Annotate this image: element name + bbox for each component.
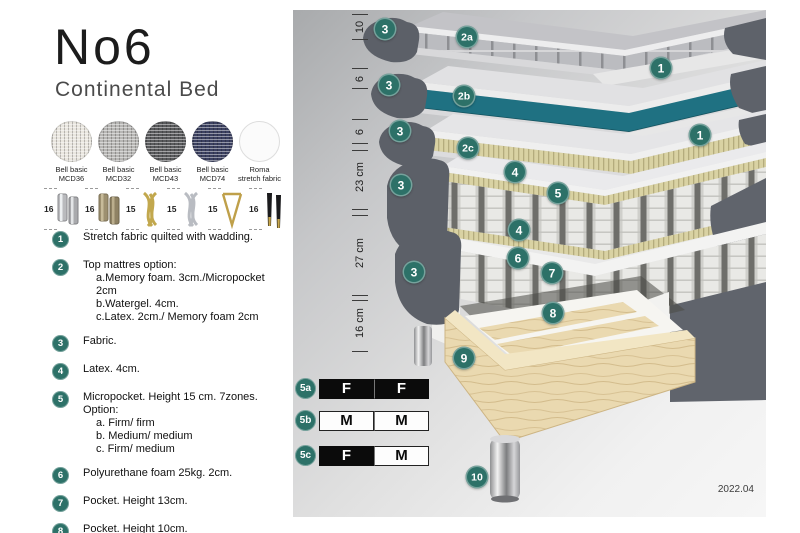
feature-sub-option: a.Memory foam. 3cm./Micropocket 2cm (83, 272, 288, 298)
fabric-swatch-label: Bell basicMCD74 (196, 166, 228, 183)
callout-badge-9: 9 (453, 347, 476, 370)
callout-badge-4: 4 (504, 161, 527, 184)
feature-item: 1Stretch fabric quilted with wadding. (52, 231, 288, 248)
feature-item: 8Pocket. Height 10cm. (52, 523, 288, 533)
firmness-bar: FM (319, 446, 429, 466)
feature-text: Micropocket. Height 15 cm. 7zones. Optio… (83, 391, 288, 456)
feature-item: 7Pocket. Height 13cm. (52, 495, 288, 512)
firmness-cell: M (319, 411, 374, 431)
firmness-row-5c: 5cFM (295, 445, 429, 466)
leg-option: 15 (208, 186, 247, 232)
fabric-swatch-row: Bell basicMCD36Bell basicMCD32Bell basic… (50, 121, 281, 183)
feature-number-badge: 2 (52, 259, 69, 276)
feature-number-badge: 8 (52, 523, 69, 533)
measure-dash (44, 229, 57, 230)
feature-sub-option: c.Latex. 2cm./ Memory foam 2cm (83, 311, 288, 324)
fabric-swatch-circle (51, 121, 92, 162)
callout-badge-8: 8 (542, 302, 565, 325)
callout-badge-5b: 5b (295, 410, 316, 431)
callout-badge-6: 6 (507, 247, 530, 270)
ruler-segment: 27 cm (348, 215, 372, 296)
firmness-bar: FF (319, 379, 429, 399)
fabric-swatch-label: Romastretch fabric (238, 166, 281, 183)
feature-sub-option: b.Watergel. 4cm. (83, 298, 288, 311)
callout-badge-3: 3 (390, 174, 413, 197)
version-label: 2022.04 (718, 484, 754, 495)
callout-badge-2c: 2c (457, 137, 480, 160)
hairpin-gold-leg-icon (217, 189, 247, 230)
firmness-row-5b: 5bMM (295, 410, 429, 431)
ruler-segment: 23 cm (348, 150, 372, 210)
fabric-swatch: Bell basicMCD43 (144, 121, 187, 183)
feature-item: 4Latex. 4cm. (52, 363, 288, 380)
callout-badge-4: 4 (508, 219, 531, 242)
callout-badge-3: 3 (389, 120, 412, 143)
ruler-segment: 10 (348, 14, 372, 40)
firmness-cell: F (319, 379, 374, 399)
ruler-measure-label: 6 (354, 67, 366, 91)
measure-dash (85, 229, 98, 230)
fabric-swatch-circle (98, 121, 139, 162)
diagram-panel: 106623 cm27 cm16 cm 32a132b132c345436789… (293, 10, 766, 517)
callout-badge-5a: 5a (295, 378, 316, 399)
feature-item: 2Top mattres option:a.Memory foam. 3cm./… (52, 259, 288, 324)
page-title: No6 (54, 18, 155, 76)
feature-text: Top mattres option:a.Memory foam. 3cm./M… (83, 259, 288, 324)
ruler-measure-label: 27 cm (354, 244, 366, 268)
callout-badge-2b: 2b (453, 85, 476, 108)
ruler-tick (352, 150, 368, 151)
feature-number-badge: 5 (52, 391, 69, 408)
feature-sub-option: a. Firm/ firm (83, 417, 288, 430)
leg-option: 16 (44, 186, 83, 232)
feature-text: Pocket. Height 13cm. (83, 495, 188, 512)
measure-dash (167, 229, 180, 230)
fabric-swatch-label: Bell basicMCD43 (149, 166, 181, 183)
info-column: No6 Continental Bed Bell basicMCD36Bell … (0, 0, 293, 533)
twist-silver-leg-icon (176, 189, 206, 230)
ruler-measure-label: 23 cm (354, 168, 366, 192)
fabric-swatch: Romastretch fabric (238, 121, 281, 183)
measure-dash (126, 229, 139, 230)
feature-text: Stretch fabric quilted with wadding. (83, 231, 253, 248)
feature-text: Latex. 4cm. (83, 363, 140, 380)
firmness-bar: MM (319, 411, 429, 431)
firmness-cell: M (374, 446, 429, 466)
callout-badge-3: 3 (378, 74, 401, 97)
ruler-tick (352, 215, 368, 216)
feature-sub-option: c. Firm/ medium (83, 443, 288, 456)
ruler-tick (352, 300, 368, 301)
ruler-tick (352, 209, 368, 210)
firmness-cell: F (319, 446, 374, 466)
ruler-tick (352, 39, 368, 40)
feature-number-badge: 6 (52, 467, 69, 484)
feature-number-badge: 3 (52, 335, 69, 352)
ruler-segment: 6 (348, 119, 372, 144)
ruler-segment: 6 (348, 68, 372, 89)
metal-leg (490, 435, 520, 503)
measure-dash (249, 229, 262, 230)
fabric-swatch-label: Bell basicMCD36 (55, 166, 87, 183)
callout-badge-7: 7 (541, 262, 564, 285)
cyl-bronze-leg-icon (94, 189, 124, 230)
feature-number-badge: 7 (52, 495, 69, 512)
callout-badge-3: 3 (374, 18, 397, 41)
measure-dash (208, 229, 221, 230)
feature-number-badge: 1 (52, 231, 69, 248)
fabric-swatch-circle (192, 121, 233, 162)
fabric-swatch-circle (239, 121, 280, 162)
firmness-cell: F (374, 379, 429, 399)
feature-number-badge: 4 (52, 363, 69, 380)
ruler-tick (352, 295, 368, 296)
ruler-measure-label: 6 (354, 120, 366, 144)
fabric-swatch-label: Bell basicMCD32 (102, 166, 134, 183)
fabric-swatch: Bell basicMCD32 (97, 121, 140, 183)
firmness-row-5a: 5aFF (295, 378, 429, 399)
callout-badge-3: 3 (403, 261, 426, 284)
feature-text: Polyurethane foam 25kg. 2cm. (83, 467, 232, 484)
taper-black-leg-icon (258, 189, 288, 230)
infographic-page: No6 Continental Bed Bell basicMCD36Bell … (0, 0, 800, 533)
leg-options-row: 161615151516 (44, 186, 288, 232)
twist-gold-leg-icon (135, 189, 165, 230)
ruler-tick (352, 143, 368, 144)
fabric-swatch: Bell basicMCD74 (191, 121, 234, 183)
feature-list: 1Stretch fabric quilted with wadding.2To… (52, 231, 288, 533)
callout-badge-2a: 2a (456, 26, 479, 49)
callout-badge-1: 1 (650, 57, 673, 80)
leg-option: 16 (85, 186, 124, 232)
ruler-measure-label: 16 cm (354, 314, 366, 338)
fabric-swatch-circle (145, 121, 186, 162)
firmness-cell: M (374, 411, 429, 431)
ruler-tick (352, 351, 368, 352)
ruler-segment: 16 cm (348, 300, 372, 352)
feature-item: 5Micropocket. Height 15 cm. 7zones. Opti… (52, 391, 288, 456)
fabric-swatch: Bell basicMCD36 (50, 121, 93, 183)
ruler-tick (352, 88, 368, 89)
callout-badge-10: 10 (466, 466, 489, 489)
leg-option: 15 (126, 186, 165, 232)
feature-text: Pocket. Height 10cm. (83, 523, 188, 533)
callout-badge-5c: 5c (295, 445, 316, 466)
cyl-silver-leg-icon (53, 189, 83, 230)
feature-item: 3Fabric. (52, 335, 288, 352)
feature-sub-option: b. Medium/ medium (83, 430, 288, 443)
feature-text: Fabric. (83, 335, 117, 352)
page-subtitle: Continental Bed (55, 78, 219, 102)
leg-option: 16 (249, 186, 288, 232)
leg-option: 15 (167, 186, 206, 232)
callout-badge-1: 1 (689, 124, 712, 147)
feature-item: 6Polyurethane foam 25kg. 2cm. (52, 467, 288, 484)
ruler-measure-label: 10 (354, 15, 366, 39)
callout-badge-5: 5 (547, 182, 570, 205)
